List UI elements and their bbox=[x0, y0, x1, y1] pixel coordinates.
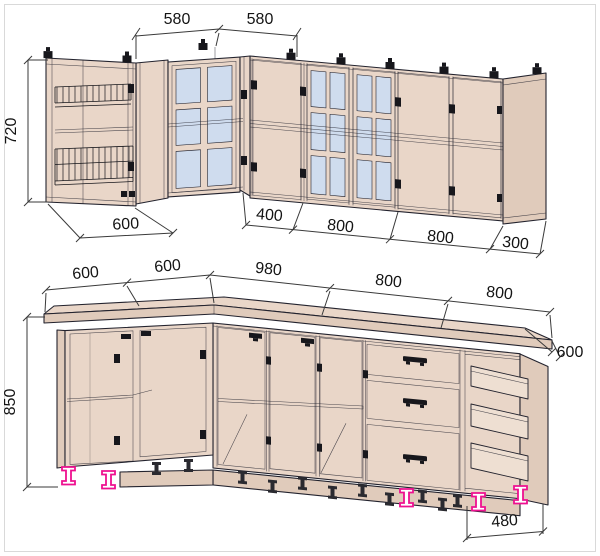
dimension-label: 400 bbox=[255, 206, 283, 225]
dimension-label: 800 bbox=[485, 284, 513, 304]
corner-glass-door bbox=[168, 57, 240, 197]
dimension-label: 580 bbox=[247, 11, 274, 28]
dimension-label: 720 bbox=[3, 118, 20, 145]
corner-wall-cabinet bbox=[136, 47, 250, 204]
base-cabinets-left-arm bbox=[57, 323, 213, 487]
dimension-label: 600 bbox=[72, 264, 100, 283]
dimension-label: 300 bbox=[501, 234, 529, 254]
dish-rack-wall-cabinet bbox=[46, 58, 136, 206]
wall-end-panel bbox=[503, 73, 546, 224]
dimension-label: 800 bbox=[326, 217, 354, 237]
dimension-label: 600 bbox=[557, 344, 584, 361]
plinth bbox=[120, 470, 213, 487]
dimension-label: 580 bbox=[164, 11, 191, 28]
dimension-label: 800 bbox=[374, 272, 402, 292]
wall-cabinets-group bbox=[44, 39, 547, 224]
base-cabinets-group bbox=[44, 297, 552, 519]
kitchen-drawing: 580 580 720 600 400 800 800 300 bbox=[0, 0, 600, 556]
dimension-label: 600 bbox=[112, 215, 140, 233]
dimension-label: 850 bbox=[2, 389, 19, 416]
dimension-label: 600 bbox=[154, 257, 182, 276]
dimension-label: 800 bbox=[426, 228, 454, 248]
wall-cabinets-right-run bbox=[250, 56, 503, 221]
dimension-label: 480 bbox=[491, 512, 519, 531]
kitchen-drawing-page: 580 580 720 600 400 800 800 300 bbox=[0, 0, 600, 556]
dimension-label: 980 bbox=[254, 260, 282, 280]
